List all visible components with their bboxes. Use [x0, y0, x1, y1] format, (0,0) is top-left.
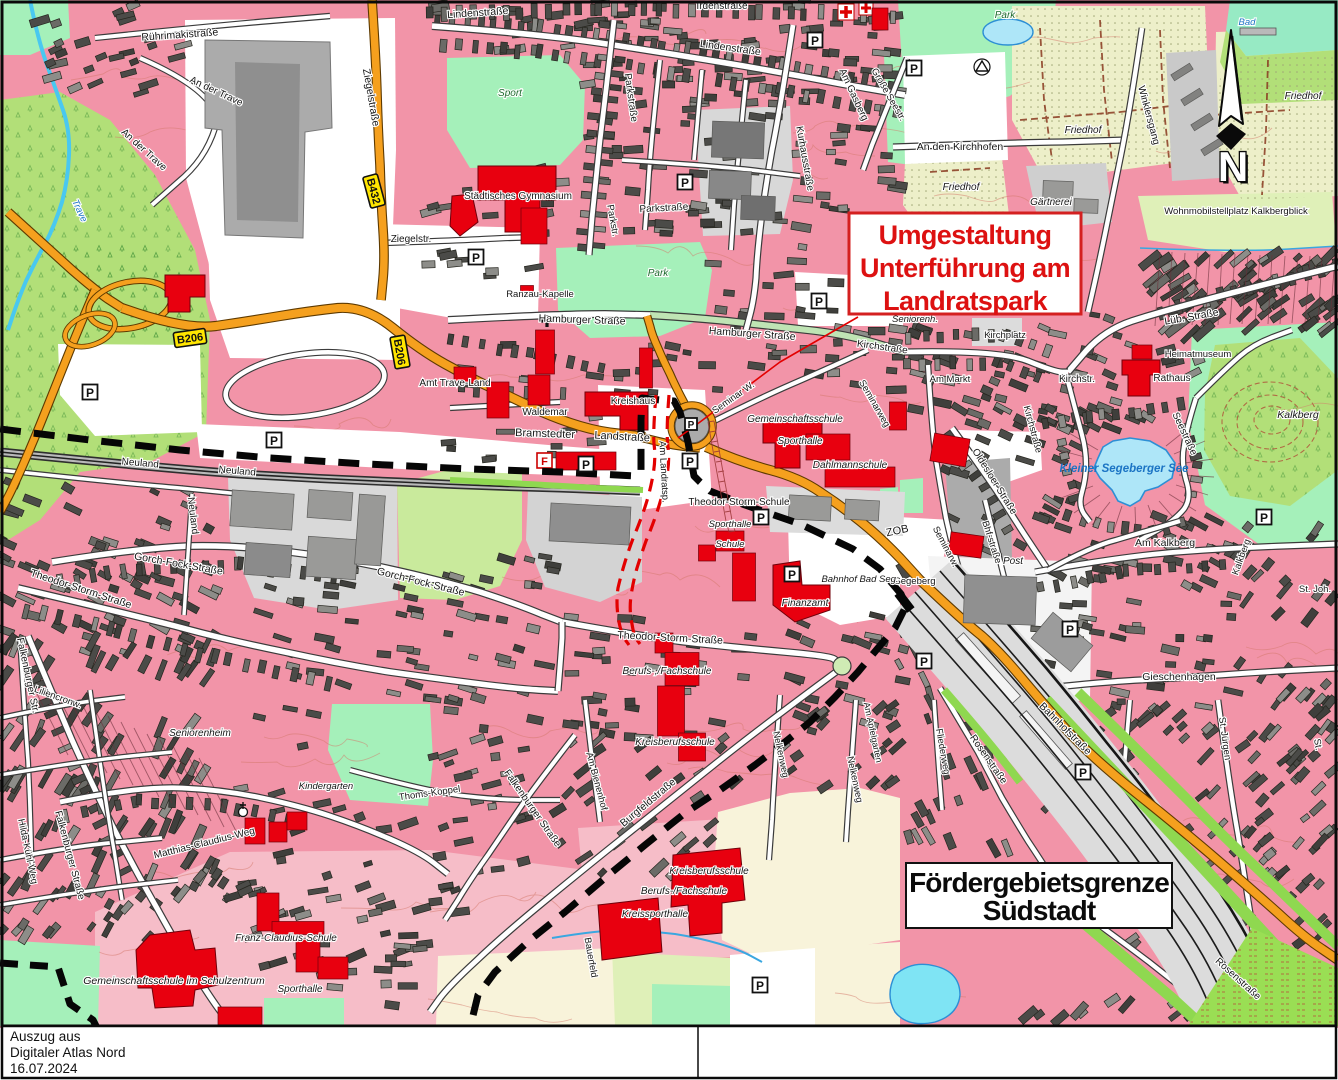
svg-text:Kleiner Segeberger See: Kleiner Segeberger See — [1059, 463, 1189, 475]
svg-text:Gemeinschaftsschule: Gemeinschaftsschule — [747, 414, 843, 425]
svg-text:P: P — [756, 979, 764, 993]
svg-text:St.: St. — [1311, 738, 1324, 751]
svg-text:Sport: Sport — [498, 88, 523, 99]
svg-text:Finanzamt: Finanzamt — [782, 598, 830, 609]
svg-text:Kindergarten: Kindergarten — [299, 781, 353, 792]
svg-text:Landratspark: Landratspark — [883, 286, 1048, 316]
svg-text:Digitaler Atlas Nord: Digitaler Atlas Nord — [10, 1045, 126, 1060]
svg-text:Schule: Schule — [715, 539, 744, 550]
svg-text:Dahlmannschule: Dahlmannschule — [813, 460, 888, 471]
svg-text:P: P — [811, 34, 819, 48]
svg-text:Gemeinschaftsschule im Schulze: Gemeinschaftsschule im Schulzentrum — [83, 975, 265, 987]
svg-text:P: P — [1260, 511, 1268, 525]
svg-text:Segeberg: Segeberg — [894, 576, 935, 587]
svg-text:P: P — [472, 251, 480, 265]
svg-text:Südstadt: Südstadt — [983, 895, 1096, 926]
svg-text:Umgestaltung: Umgestaltung — [879, 220, 1052, 250]
svg-text:N: N — [1218, 143, 1248, 190]
svg-text:Berufs-,/Fachschule: Berufs-,/Fachschule — [623, 666, 712, 677]
svg-text:Friedhof: Friedhof — [943, 182, 981, 193]
svg-text:P: P — [910, 62, 918, 76]
svg-text:P: P — [815, 295, 823, 309]
svg-text:Berufs-/Fachschule: Berufs-/Fachschule — [641, 886, 728, 897]
svg-text:Am Kalkberg: Am Kalkberg — [1135, 537, 1195, 549]
svg-text:Seniorenheim: Seniorenheim — [169, 728, 231, 739]
svg-text:Waldemar: Waldemar — [522, 407, 568, 418]
svg-text:Fördergebietsgrenze: Fördergebietsgrenze — [909, 867, 1169, 898]
svg-text:Unterführung am: Unterführung am — [860, 253, 1070, 283]
svg-text:Rathaus: Rathaus — [1153, 373, 1190, 384]
svg-text:Heimatmuseum: Heimatmuseum — [1165, 349, 1232, 360]
svg-text:Amt Trave-Land: Amt Trave-Land — [419, 378, 490, 389]
svg-text:P: P — [270, 434, 278, 448]
svg-text:Auszug aus: Auszug aus — [10, 1029, 81, 1044]
svg-text:Kreisberufsschule: Kreisberufsschule — [635, 737, 715, 748]
svg-text:P: P — [920, 655, 928, 669]
svg-text:Bahnhof Bad Seg.: Bahnhof Bad Seg. — [821, 574, 898, 585]
svg-text:P: P — [688, 420, 695, 431]
svg-text:An den Kirchhofen: An den Kirchhofen — [917, 141, 1004, 153]
svg-text:Franz-Claudius-Schule: Franz-Claudius-Schule — [235, 933, 337, 944]
svg-text:Park: Park — [648, 268, 670, 279]
svg-text:Ziegelstr.: Ziegelstr. — [391, 234, 432, 245]
svg-text:P: P — [86, 386, 94, 400]
svg-text:Kreishaus: Kreishaus — [611, 396, 655, 407]
svg-text:Am Markt: Am Markt — [930, 374, 971, 385]
svg-text:Post: Post — [1003, 556, 1024, 567]
svg-text:Kirchstr.: Kirchstr. — [1059, 374, 1095, 385]
svg-text:Sporthalle: Sporthalle — [277, 984, 322, 995]
svg-text:Sporthalle: Sporthalle — [709, 519, 752, 530]
svg-text:Theodor-Storm-Schule: Theodor-Storm-Schule — [688, 497, 790, 508]
svg-text:P: P — [757, 511, 765, 525]
svg-text:Friedhof: Friedhof — [1285, 91, 1323, 102]
svg-text:Kreissporthalle: Kreissporthalle — [622, 909, 689, 920]
svg-text:P: P — [686, 455, 694, 469]
svg-text:Wohnmobilstellplatz Kalkbergbl: Wohnmobilstellplatz Kalkbergblick — [1164, 206, 1308, 217]
svg-text:St. Joh.: St. Joh. — [1299, 584, 1331, 595]
svg-text:Kalkberg: Kalkberg — [1277, 409, 1319, 421]
svg-text:P: P — [1079, 766, 1087, 780]
svg-text:F: F — [541, 456, 548, 468]
svg-text:P: P — [681, 176, 689, 190]
svg-text:Ranzau-Kapelle: Ranzau-Kapelle — [506, 289, 574, 300]
svg-text:Sporthalle: Sporthalle — [777, 436, 822, 447]
svg-text:Gieschenhagen: Gieschenhagen — [1142, 671, 1216, 683]
svg-text:P: P — [582, 458, 590, 472]
svg-text:Städtisches Gymnasium: Städtisches Gymnasium — [464, 191, 572, 202]
svg-text:Kreisberufsschule: Kreisberufsschule — [669, 866, 749, 877]
svg-text:Park: Park — [995, 10, 1017, 21]
svg-text:Bramstedter: Bramstedter — [515, 427, 576, 441]
svg-text:P: P — [788, 568, 796, 582]
svg-text:16.07.2024: 16.07.2024 — [10, 1061, 78, 1076]
svg-text:Friedhof: Friedhof — [1065, 125, 1103, 136]
svg-text:Kirchplatz: Kirchplatz — [984, 330, 1026, 341]
svg-text:P: P — [1066, 623, 1074, 637]
svg-text:Bad: Bad — [1239, 17, 1257, 28]
svg-text:Gärtnerei: Gärtnerei — [1030, 197, 1072, 208]
